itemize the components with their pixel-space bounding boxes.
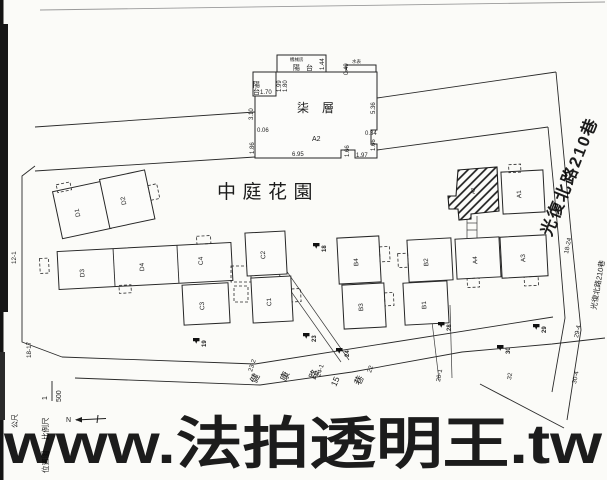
road-label-char: 15 <box>329 375 342 388</box>
building-b3: B3 <box>342 282 395 329</box>
dim-left-top: 3.10 <box>249 108 255 120</box>
dim-left-bot: 1.86 <box>250 142 256 154</box>
utility-pole-icon <box>193 338 200 344</box>
utility-pole-icon <box>438 322 445 328</box>
scale-numerator: 1 <box>42 396 49 400</box>
building-label: C2 <box>260 250 267 259</box>
building-b1: B1 <box>403 281 449 325</box>
building-d2: D2 <box>100 168 164 228</box>
pole-number: 30 <box>506 347 512 354</box>
building-a1: A1 <box>501 163 546 214</box>
utility-pole-18: 18 <box>313 243 328 252</box>
dim-right-step: 0.34 <box>365 131 377 137</box>
building-a4: A4 <box>455 237 502 288</box>
left-balcony-label: 陽台 <box>253 80 261 96</box>
pole-number: 23 <box>312 335 318 342</box>
utility-pole-icon <box>497 345 504 351</box>
building-a3: A3 <box>500 235 549 287</box>
pole-number: 18 <box>322 245 328 252</box>
roof-notch <box>346 65 376 72</box>
floor-label: 柒層 <box>297 101 347 115</box>
lot-label: 29-4 <box>573 324 583 338</box>
utility-pole-19: 19 <box>193 338 208 347</box>
dim-bottom: 6.95 <box>292 152 304 158</box>
building-label: C3 <box>199 301 206 310</box>
dim-bottom-right: 1.97 <box>356 153 368 159</box>
lot-label: 23-2 <box>247 358 258 373</box>
dim-right-bot: 1.66 <box>371 139 377 151</box>
courtyard-garden-label: 中庭花園 <box>217 181 319 203</box>
dim-left-mid: 0.06 <box>257 128 269 134</box>
building-a2-subject-hatched: A2 <box>448 167 499 220</box>
pole-number: 28 <box>447 324 453 331</box>
dim-balcony-left-w: 1.70 <box>260 90 272 96</box>
building-label: D4 <box>139 262 146 271</box>
lot-label: 12-1 <box>11 251 18 264</box>
building-label: B4 <box>353 258 360 267</box>
road-label-char: 健 <box>248 371 263 385</box>
lot-label: 18-24 <box>563 237 573 255</box>
pole-number: 29 <box>542 326 548 333</box>
lobby-connector <box>234 286 248 302</box>
building-b4: B4 <box>337 235 391 284</box>
building-label: B3 <box>358 303 365 312</box>
machine-room-label: 機械房 <box>290 56 304 63</box>
road-name-bottom: 健 康 路 15 巷 <box>248 367 367 388</box>
utility-pole-23: 23 <box>303 333 318 342</box>
building-label: C1 <box>266 297 273 306</box>
building-label: C4 <box>198 256 205 265</box>
lot-label: 26-1 <box>435 368 444 382</box>
utility-pole-icon <box>313 243 320 249</box>
road-label-char: 巷 <box>353 374 367 388</box>
scale-denominator: 500 <box>56 390 63 402</box>
pole-number: 19 <box>202 340 208 347</box>
street-label-magenta: 光復北路210巷 <box>536 114 602 239</box>
unit-label: A2 <box>312 136 321 143</box>
dim-right-side: 5.36 <box>371 102 377 114</box>
lot-label: 32 <box>506 372 514 381</box>
building-label: A4 <box>472 256 479 265</box>
pole-number: 24 <box>345 350 351 357</box>
building-b2: B2 <box>397 238 453 283</box>
utility-pole-icon <box>303 333 310 339</box>
dim-top-right: 0.49 <box>344 63 350 75</box>
dim-balcony-left-2: 1.80 <box>283 80 289 92</box>
building-label: D3 <box>79 268 86 277</box>
street-label-small: 光復北路210巷 <box>588 259 607 310</box>
top-balcony-label: 陽台 <box>293 63 319 72</box>
building-label: A2 <box>471 188 477 194</box>
building-label: B1 <box>421 301 428 310</box>
building-label: A3 <box>520 254 527 263</box>
lot-label: 18-17 <box>26 341 33 358</box>
building-label: B2 <box>423 258 430 267</box>
utility-pole-icon <box>533 324 540 330</box>
building-c3: C3 <box>182 283 230 325</box>
water-meter-label: 水表 <box>352 58 361 65</box>
dim-bottom-step: 1.66 <box>345 145 351 157</box>
utility-pole-icon <box>336 348 343 354</box>
site-plan-svg: 機械房 陽台 陽台 水表 柒層 A2 3.10 0.06 1.86 1.70 1… <box>0 0 607 480</box>
lot-label: 30-4 <box>571 370 581 384</box>
dim-balcony-top: 1.44 <box>320 58 326 70</box>
utility-pole-30: 30 <box>497 345 512 354</box>
utility-pole-29: 29 <box>533 324 548 333</box>
building-label: A1 <box>516 190 523 199</box>
lot-label: 22 <box>366 364 375 373</box>
watermark: www.法拍透明王.tw <box>3 412 603 475</box>
building-c2: C2 <box>245 231 287 276</box>
unit-floorplan: 機械房 陽台 陽台 水表 柒層 A2 3.10 0.06 1.86 1.70 1… <box>249 55 377 159</box>
scanned-site-plan-page: 機械房 陽台 陽台 水表 柒層 A2 3.10 0.06 1.86 1.70 1… <box>0 0 607 480</box>
